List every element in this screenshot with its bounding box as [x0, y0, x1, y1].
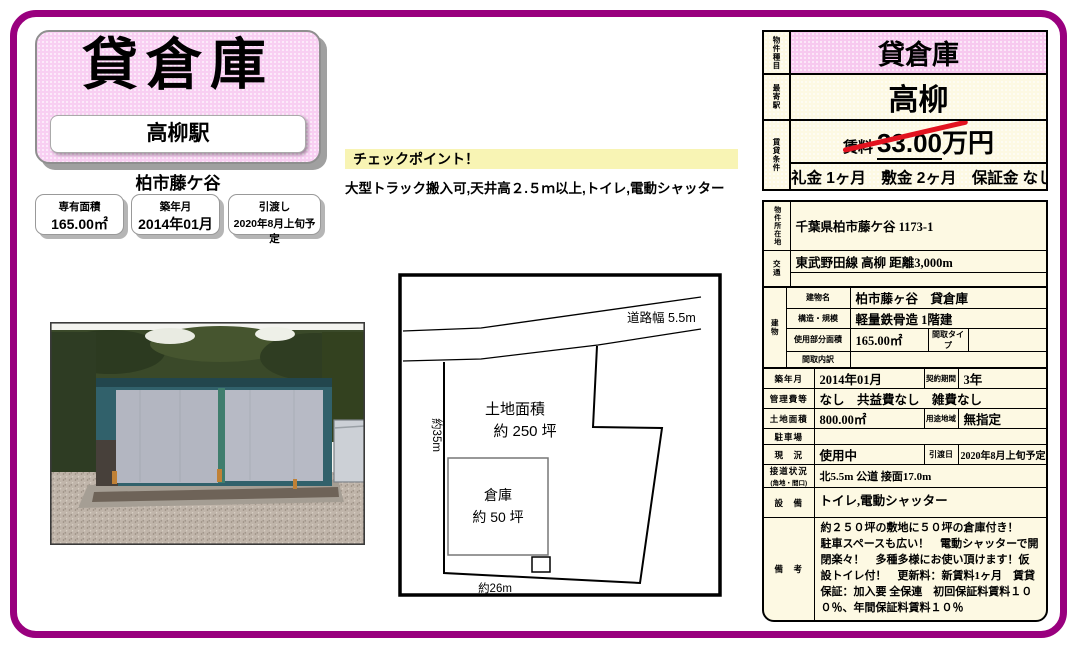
property-photo: [50, 322, 365, 545]
management-fee-label: 管理費等: [764, 389, 814, 409]
madori-breakdown-value: [850, 351, 1046, 367]
summary-type-label: 物件種目: [764, 32, 790, 74]
stat-value: 2020年8月上旬予定: [229, 216, 320, 246]
remarks-value: 約２５０坪の敷地に５０坪の倉庫付き！ 駐車スペースも広い！ 電動シャッターで開閉…: [814, 518, 1046, 620]
land-area-label-2: 約 250 坪: [493, 423, 556, 440]
madori-type-label: 間取タイプ: [928, 328, 968, 351]
details-card: 物件所在地 千葉県柏市藤ケ谷 1173-1 交通 東武野田線 高柳 距離3,00…: [762, 200, 1048, 622]
property-type-banner: 貸倉庫 高柳駅: [35, 30, 321, 164]
summary-terms-label: 賃貸条件: [764, 120, 790, 189]
building-label: 建物: [764, 288, 786, 367]
built-value: 2014年01月: [814, 369, 924, 389]
road-access-label-main: 接道状況: [770, 466, 808, 476]
stat-value: 165.00㎡: [36, 214, 123, 234]
madori-type-value: [968, 328, 1046, 351]
remarks-label: 備 考: [764, 518, 814, 620]
equipment-value: トイレ,電動シャッター: [814, 488, 1046, 518]
rent-row: 賃料33.00万円: [790, 120, 1046, 163]
checkpoint-title: チェックポイント！: [345, 149, 738, 169]
land-area-value: 800.00㎡: [814, 409, 924, 429]
building-name-value: 柏市藤ヶ谷 貸倉庫: [850, 288, 1046, 308]
stat-label: 築年月: [132, 199, 219, 214]
equipment-label: 設 備: [764, 488, 814, 518]
structure-label: 構造・規模: [786, 308, 850, 328]
transport-value: 東武野田線 高柳 距離3,000m: [790, 250, 1046, 272]
status-value: 使用中: [814, 445, 924, 465]
road-access-label-sub: (角地・間口): [764, 477, 814, 487]
handover-label: 引渡日: [924, 445, 958, 465]
width-dimension-label: 約26m: [478, 581, 512, 595]
summary-card: 物件種目 貸倉庫 最寄駅 高柳 賃貸条件 賃料33.00万円 礼金 1ヶ月 敷金…: [762, 30, 1048, 191]
stat-label: 専有面積: [36, 199, 123, 214]
status-label: 現 況: [764, 445, 814, 465]
summary-station-label: 最寄駅: [764, 74, 790, 120]
land-area-label: 土地面積: [764, 409, 814, 429]
parking-label: 駐車場: [764, 429, 814, 445]
used-area-value: 165.00㎡: [850, 328, 928, 351]
road-access-label: 接道状況 (角地・間口): [764, 465, 814, 488]
warehouse-label-2: 約 50 坪: [472, 509, 523, 525]
transport-label: 交通: [764, 250, 790, 286]
checkpoint-text: 大型トラック搬入可,天井高２.５ｍ以上,トイレ,電動シャッター: [345, 177, 725, 197]
location-value: 千葉県柏市藤ケ谷 1173-1: [790, 202, 1046, 250]
area-name: 柏市藤ケ谷: [35, 169, 321, 194]
site-plan-diagram: 道路幅 5.5m 土地面積 約 250 坪 倉庫 約 50 坪 約35m 約26…: [395, 270, 725, 600]
checkpoint-band: チェックポイント！: [345, 149, 738, 169]
building-name-label: 建物名: [786, 288, 850, 308]
structure-value: 軽量鉄骨造 1階建: [850, 308, 1046, 328]
summary-type-value: 貸倉庫: [790, 32, 1046, 74]
details-location-section: 物件所在地 千葉県柏市藤ケ谷 1173-1 交通 東武野田線 高柳 距離3,00…: [764, 202, 1046, 286]
contract-label: 契約期間: [924, 369, 958, 389]
deposit-terms: 礼金 1ヶ月 敷金 2ヶ月 保証金 なし: [790, 163, 1046, 189]
warehouse-label-1: 倉庫: [484, 487, 512, 503]
zoning-label: 用途地域: [924, 409, 958, 429]
transport-value-2: [790, 272, 1046, 286]
flyer-page: 貸倉庫 高柳駅 柏市藤ケ谷 専有面積 165.00㎡ 築年月 2014年01月 …: [0, 0, 1079, 650]
stat-label: 引渡し: [229, 199, 320, 214]
rent-unit: 万円: [942, 128, 994, 158]
road-width-label: 道路幅 5.5m: [627, 310, 696, 325]
zoning-value: 無指定: [958, 409, 1046, 429]
handover-value: 2020年8月上旬予定: [958, 445, 1046, 465]
land-area-label-1: 土地面積: [485, 401, 545, 418]
location-label: 物件所在地: [764, 202, 790, 250]
details-building-section: 建物 建物名 柏市藤ヶ谷 貸倉庫 構造・規模 軽量鉄骨造 1階建 使用部分面積 …: [764, 286, 1046, 367]
stat-value: 2014年01月: [132, 214, 219, 234]
stat-box-area: 専有面積 165.00㎡: [35, 194, 124, 235]
management-fee-value: なし 共益費なし 雑費なし: [814, 389, 1046, 409]
stat-box-built: 築年月 2014年01月: [131, 194, 220, 235]
summary-station-value: 高柳: [790, 74, 1046, 120]
station-name-box: 高柳駅: [50, 115, 306, 153]
used-area-label: 使用部分面積: [786, 328, 850, 351]
road-access-value: 北5.5m 公道 接面17.0m: [814, 465, 1046, 488]
details-terms-section: 築年月 2014年01月 契約期間 3年 管理費等 なし 共益費なし 雑費なし …: [764, 367, 1046, 620]
depth-dimension-label: 約35m: [430, 418, 444, 452]
madori-breakdown-label: 間取内訳: [786, 351, 850, 367]
built-label: 築年月: [764, 369, 814, 389]
parking-value: [814, 429, 1046, 445]
property-type-title: 貸倉庫: [37, 32, 319, 96]
contract-value: 3年: [958, 369, 1046, 389]
stat-box-handover: 引渡し 2020年8月上旬予定: [228, 194, 321, 235]
